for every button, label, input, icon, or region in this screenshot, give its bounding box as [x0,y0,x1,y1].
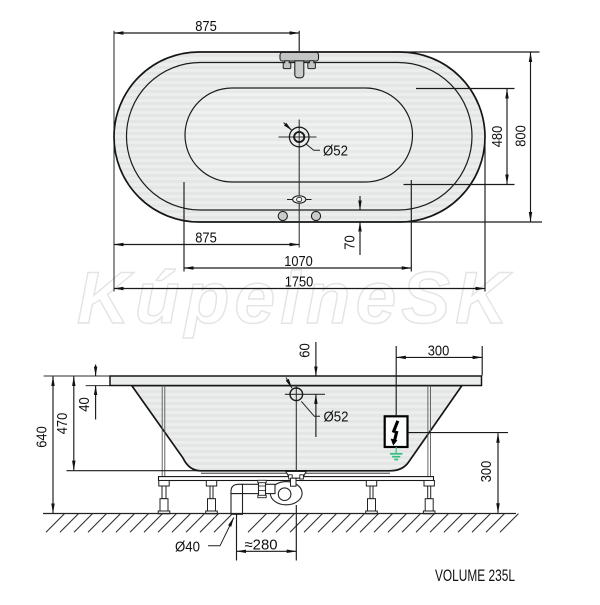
svg-text:70: 70 [342,235,359,250]
svg-text:≈280: ≈280 [245,537,278,554]
svg-text:Ø40: Ø40 [175,539,200,556]
svg-text:VOLUME 235L: VOLUME 235L [435,567,515,585]
svg-text:Ø52: Ø52 [324,409,349,426]
svg-text:1750: 1750 [285,274,314,291]
svg-text:875: 875 [195,18,217,35]
svg-text:60: 60 [297,343,314,358]
svg-text:480: 480 [489,126,506,148]
svg-text:Ø52: Ø52 [323,143,348,160]
svg-text:875: 875 [195,230,217,247]
svg-text:300: 300 [478,461,495,483]
svg-text:800: 800 [513,125,530,147]
svg-text:300: 300 [428,342,450,359]
svg-text:470: 470 [54,413,71,435]
svg-text:40: 40 [76,397,93,412]
svg-text:1070: 1070 [284,253,313,270]
svg-text:640: 640 [34,426,51,448]
svg-text:KúpelneSK: KúpelneSK [77,258,513,339]
